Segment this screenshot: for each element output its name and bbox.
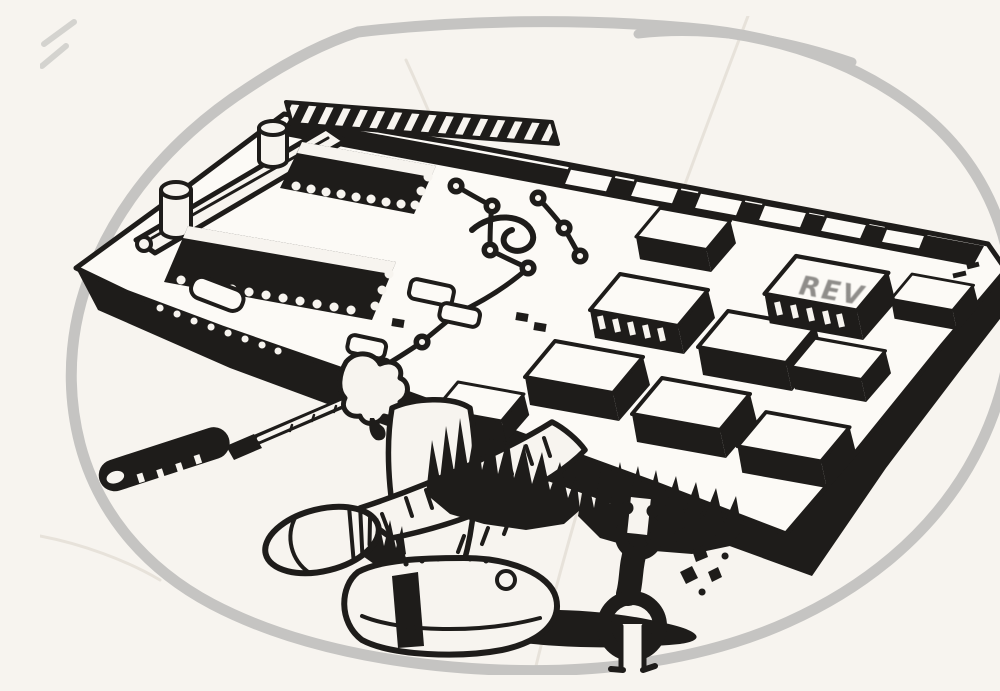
rail-end-cap — [137, 237, 151, 251]
wrench-top-prong — [621, 502, 634, 515]
scanned-cartoon: REV — [40, 16, 1000, 675]
capacitor-top — [259, 121, 287, 135]
capacitor-1 — [259, 121, 287, 167]
wrench-bottom-opening — [621, 624, 644, 674]
big-shoe-sole-hole — [497, 571, 515, 589]
big-shoe — [344, 558, 557, 655]
cartoon-illustration: Black-and-white scanned cartoon: a techn… — [40, 16, 1000, 675]
wrench-top-prong — [647, 505, 660, 518]
big-shoe-body — [344, 558, 557, 655]
capacitor-top — [161, 182, 191, 198]
